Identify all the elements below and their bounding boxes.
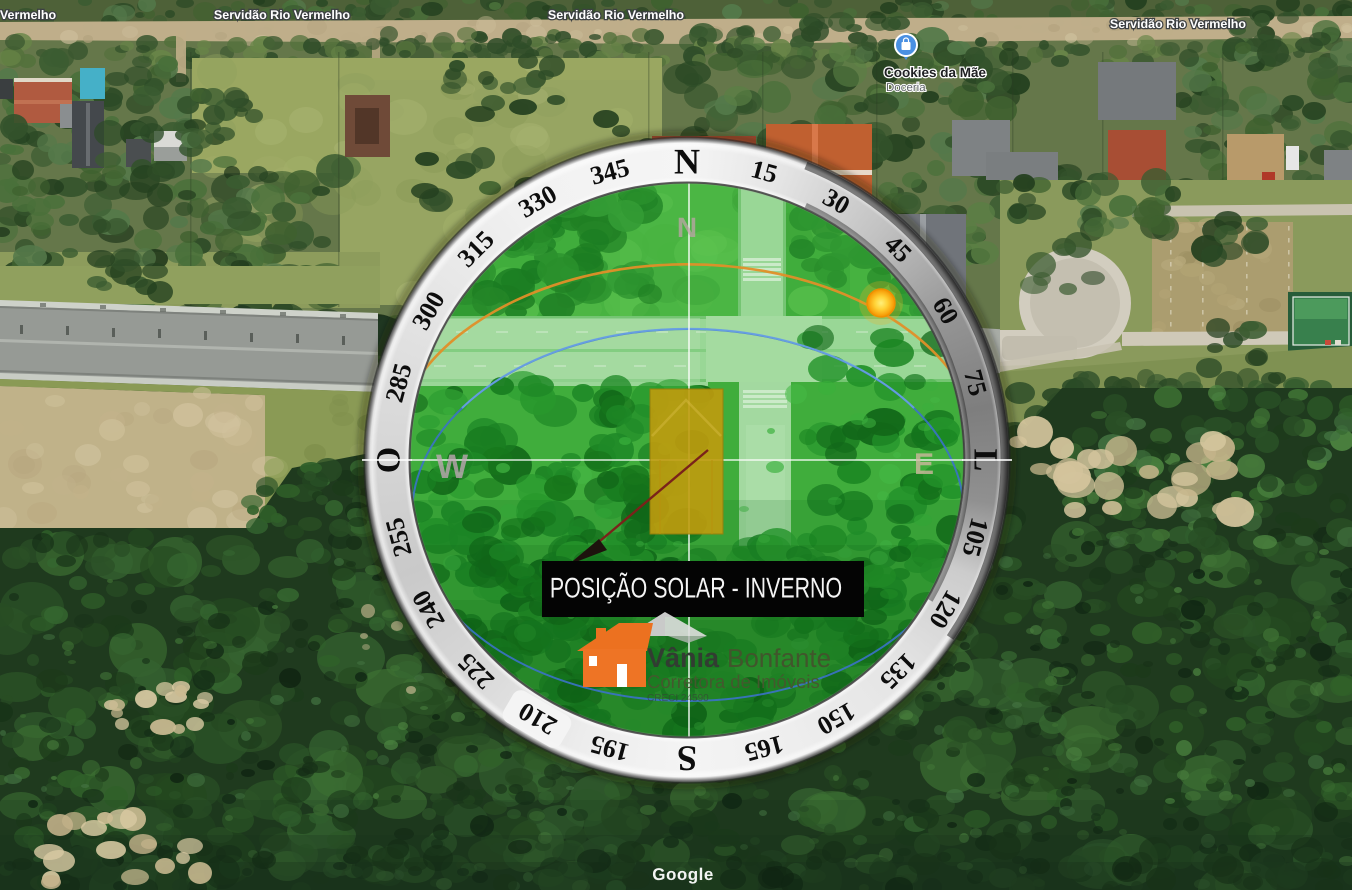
svg-text:N: N (674, 142, 700, 182)
svg-text:S: S (677, 739, 697, 779)
svg-text:Vermelho: Vermelho (0, 8, 56, 22)
svg-text:Servidão Rio Vermelho: Servidão Rio Vermelho (1110, 17, 1247, 31)
svg-text:POSIÇÃO SOLAR - INVERNO: POSIÇÃO SOLAR - INVERNO (550, 572, 842, 605)
svg-text:Doceria: Doceria (886, 82, 926, 94)
svg-text:Servidão Rio Vermelho: Servidão Rio Vermelho (548, 8, 685, 22)
svg-text:Bonfante: Bonfante (727, 643, 831, 673)
svg-text:Corretora de Imóveis: Corretora de Imóveis (647, 671, 820, 692)
svg-text:Vânia: Vânia (647, 643, 720, 673)
svg-text:Servidão Rio Vermelho: Servidão Rio Vermelho (214, 8, 351, 22)
svg-text:Cookies da Mãe: Cookies da Mãe (884, 65, 987, 80)
svg-text:CRECI 24590: CRECI 24590 (647, 693, 709, 704)
svg-text:Google: Google (652, 865, 714, 884)
